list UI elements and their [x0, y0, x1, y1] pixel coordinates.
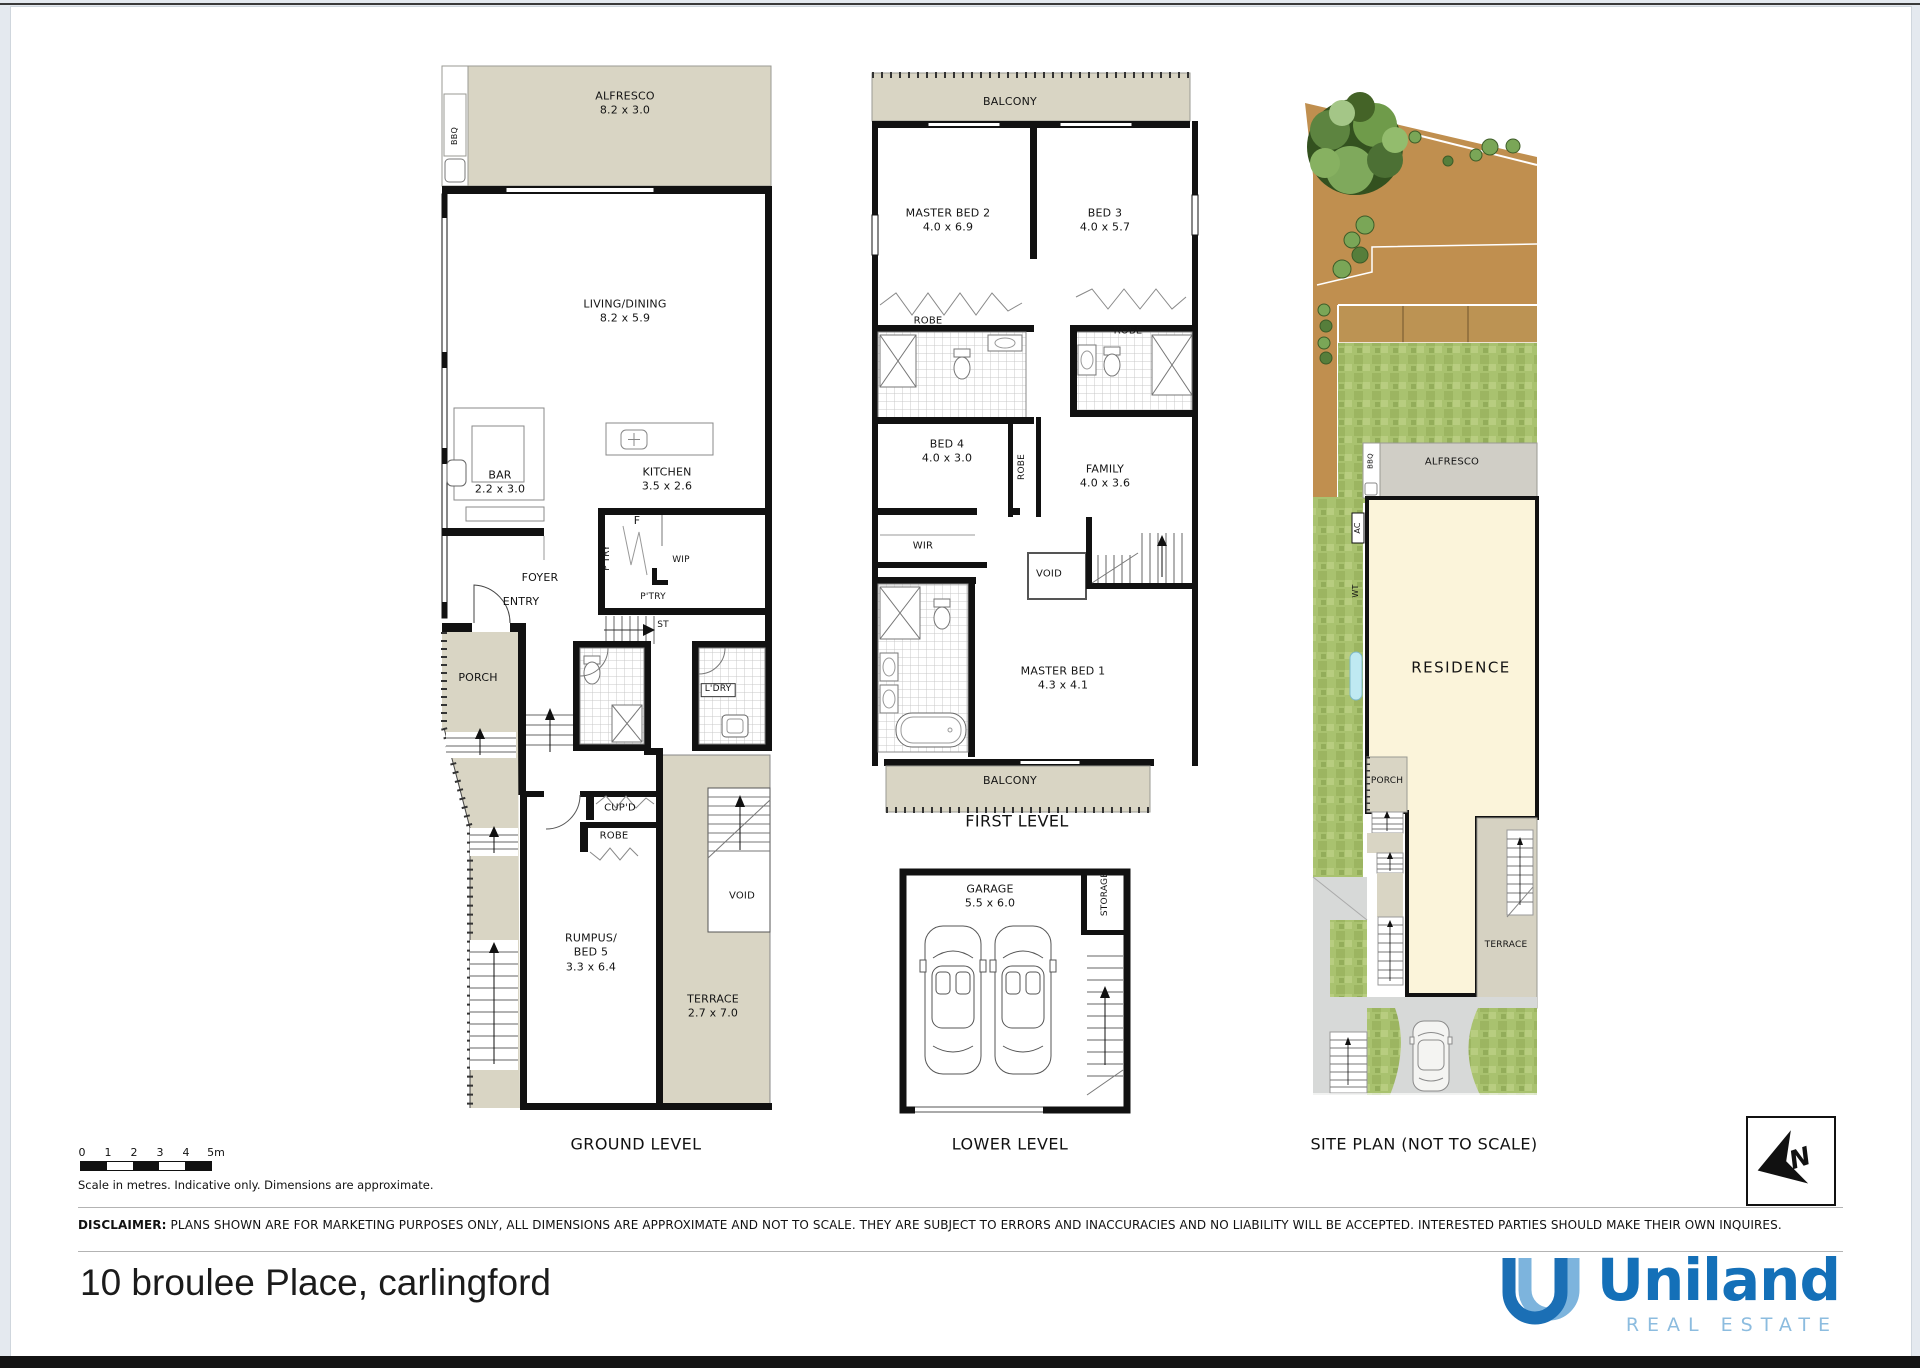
first-bed3-label: BED 3 4.0 x 5.7	[1080, 207, 1130, 236]
first-void-label: VOID	[1036, 568, 1062, 581]
property-address: 10 broulee Place, carlingford	[80, 1262, 551, 1304]
lower-garage-label: GARAGE 5.5 x 6.0	[965, 883, 1015, 912]
first-bed4-label: BED 4 4.0 x 3.0	[922, 438, 972, 467]
ground-kitchen-label: KITCHEN 3.5 x 2.6	[642, 466, 692, 495]
scale-tick: 4	[183, 1146, 190, 1159]
first-level-plan	[870, 65, 1200, 835]
ground-terrace-label: TERRACE 2.7 x 7.0	[687, 993, 739, 1022]
scale-bar	[80, 1161, 212, 1171]
top-rule	[0, 3, 1920, 5]
ground-alfresco-label: ALFRESCO 8.2 x 3.0	[595, 90, 655, 119]
first-robe-right-label: ROBE	[1114, 325, 1143, 338]
site-porch-label: PORCH	[1371, 776, 1403, 788]
first-master2-label: MASTER BED 2 4.0 x 6.9	[906, 207, 991, 236]
ground-level-title: GROUND LEVEL	[571, 1135, 702, 1156]
disclaimer-label: DISCLAIMER:	[78, 1218, 167, 1232]
scale-tick: 2	[131, 1146, 138, 1159]
site-terrace-label: TERRACE	[1485, 940, 1528, 952]
brand-name: Uniland	[1597, 1246, 1840, 1314]
disclaimer: DISCLAIMER: PLANS SHOWN ARE FOR MARKETIN…	[78, 1218, 1843, 1232]
brand-tagline: REAL ESTATE	[1626, 1314, 1838, 1336]
divider-top	[78, 1207, 1843, 1208]
lower-storage-label: STORAGE	[1100, 872, 1112, 916]
first-master1-label: MASTER BED 1 4.3 x 4.1	[1021, 665, 1106, 694]
ground-pantry-label: P'TRY	[640, 592, 666, 604]
ground-wip-label: WIP	[672, 555, 690, 567]
lower-level-title: LOWER LEVEL	[952, 1135, 1068, 1156]
first-balcony-top-label: BALCONY	[983, 95, 1037, 109]
ground-pantry-side-label: P'TRY	[602, 545, 614, 571]
ground-living-label: LIVING/DINING 8.2 x 5.9	[583, 298, 666, 327]
ground-fridge-label: F	[634, 514, 641, 528]
scale-note: Scale in metres. Indicative only. Dimens…	[78, 1178, 433, 1192]
scale-bar-numbers: 0 1 2 3 4 5m	[80, 1146, 240, 1158]
ground-entry-label: ENTRY	[503, 595, 540, 609]
ground-porch-label: PORCH	[458, 671, 497, 685]
scale-tick: 5m	[207, 1146, 225, 1159]
scale-tick: 0	[79, 1146, 86, 1159]
first-family-label: FAMILY 4.0 x 3.6	[1080, 463, 1130, 492]
ground-foyer-label: FOYER	[522, 571, 559, 585]
ground-rumpus-label: RUMPUS/ BED 5 3.3 x 6.4	[565, 932, 617, 975]
ground-bbq-label: BBQ	[450, 127, 460, 145]
uniland-logo-icon	[1495, 1252, 1590, 1340]
first-robe-left-label: ROBE	[914, 315, 943, 328]
ground-void-label: VOID	[729, 890, 755, 903]
brand-logo: Uniland REAL ESTATE	[1495, 1252, 1840, 1347]
ground-robe-label: ROBE	[600, 830, 629, 843]
site-plan	[1300, 85, 1560, 1115]
disclaimer-text: PLANS SHOWN ARE FOR MARKETING PURPOSES O…	[167, 1218, 1782, 1232]
ground-cupboard-label: CUP'D	[604, 802, 636, 815]
site-plan-title: SITE PLAN (NOT TO SCALE)	[1310, 1135, 1537, 1156]
ground-stairs-label: ST	[657, 620, 669, 632]
first-level-title: FIRST LEVEL	[965, 812, 1068, 833]
ground-laundry-label: L'DRY	[701, 683, 736, 697]
site-ac-label: AC	[1353, 522, 1363, 533]
bottom-bar	[0, 1356, 1920, 1368]
scale-tick: 3	[157, 1146, 164, 1159]
site-alfresco-label: ALFRESCO	[1425, 456, 1479, 469]
site-bbq-label: BBQ	[1366, 453, 1375, 469]
scale-tick: 1	[105, 1146, 112, 1159]
first-robe-mid-label: ROBE	[1017, 454, 1029, 480]
site-wt-label: WT	[1351, 584, 1361, 597]
floorplan-sheet: BBQ ALFRESCO 8.2 x 3.0 LIVING/DINING 8.2…	[0, 0, 1920, 1368]
ground-bar-label: BAR 2.2 x 3.0	[475, 469, 525, 498]
first-wir-label: WIR	[913, 540, 933, 553]
site-residence-label: RESIDENCE	[1411, 658, 1511, 678]
first-balcony-bottom-label: BALCONY	[983, 774, 1037, 788]
